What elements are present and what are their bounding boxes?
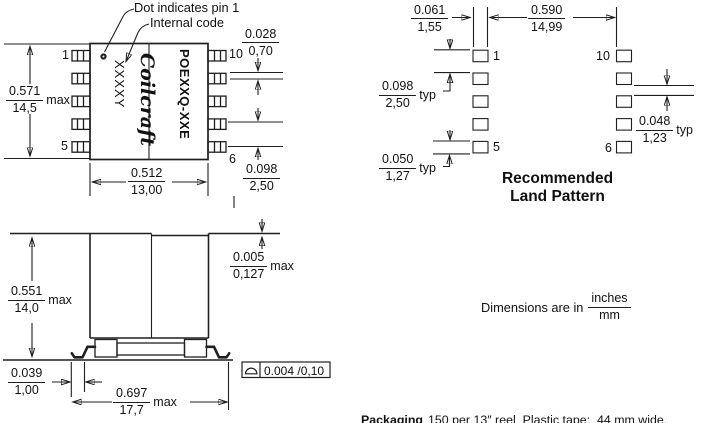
pin-label-10: 10 <box>229 48 243 61</box>
base-center-bar <box>117 343 185 355</box>
packaging-line1: Packaging150 per 13″ reel Plastic tape: … <box>361 413 701 423</box>
dim-pad-span: 0.59014,99 <box>528 4 565 34</box>
dim-pad-pitch: 0.0982,50 typ <box>379 80 436 110</box>
dim-lead-width: 0.0280,70 <box>242 28 279 58</box>
dim-arrow-leader <box>443 156 450 167</box>
pad-label-10: 10 <box>596 50 610 63</box>
base-left-block <box>95 340 117 358</box>
internal-code-callout-label: Internal code <box>150 16 224 29</box>
dim-body-width: 0.51213,00 <box>128 167 165 197</box>
pin1-dot-center <box>103 56 105 58</box>
surface-profile-icon <box>246 368 257 374</box>
units-note-text: Dimensions are in <box>481 300 583 315</box>
coilcraft-logo: Coilcraft <box>136 53 158 153</box>
marking-internal-code: XXXXY <box>112 60 127 132</box>
dim-arrow-leader <box>443 74 450 91</box>
dim-top-gap: 0.0050,127 max <box>230 251 294 281</box>
packaging-label: Packaging <box>361 413 423 423</box>
dim-overall-width: 0.69717,7 max <box>113 387 177 417</box>
dimension-drawing-page: Dot indicates pin 1 Internal code 1 5 10… <box>0 0 701 423</box>
pad-label-1: 1 <box>493 50 500 63</box>
units-note: Dimensions are in inchesmm <box>481 292 631 322</box>
dim-pad-width: 0.0611,55 <box>411 4 448 34</box>
left-pins <box>72 51 90 153</box>
packaging-text1: 150 per 13″ reel Plastic tape: 44 mm wid… <box>428 413 667 423</box>
pin-label-1: 1 <box>62 49 69 62</box>
dim-lead-pitch: 0.0982,50 <box>243 163 280 193</box>
dot-callout-leader <box>105 9 135 52</box>
land-pattern-title: Recommended Land Pattern <box>480 170 635 206</box>
packaging-note: Packaging150 per 13″ reel Plastic tape: … <box>361 382 701 423</box>
pad-label-5: 5 <box>493 141 500 154</box>
pad-label-6: 6 <box>605 142 612 155</box>
dim-side-height: 0.55114,0 max <box>8 285 72 315</box>
right-lead <box>207 347 230 358</box>
line-art-layer <box>0 0 701 423</box>
dim-pad-gap: 0.0481,23 typ <box>636 115 693 145</box>
dim-pad-height: 0.0501,27 typ <box>379 153 436 183</box>
flatness-value: 0.004 /0,10 <box>264 365 324 378</box>
base-right-block <box>185 340 207 358</box>
land-pattern-title-line2: Land Pattern <box>480 188 635 206</box>
land-pattern-title-line1: Recommended <box>480 170 635 188</box>
dot-callout-label: Dot indicates pin 1 <box>134 1 239 14</box>
left-lead <box>72 347 95 358</box>
marking-part-number: POEXXQ-XXE <box>177 49 192 153</box>
pin-label-6: 6 <box>229 153 236 166</box>
right-pins <box>208 51 226 153</box>
dim-body-height: 0.57114,5 max <box>6 85 70 115</box>
dim-lead-foot: 0.0391,00 <box>8 367 45 397</box>
land-pads <box>473 50 632 153</box>
pin-label-5: 5 <box>61 140 68 153</box>
